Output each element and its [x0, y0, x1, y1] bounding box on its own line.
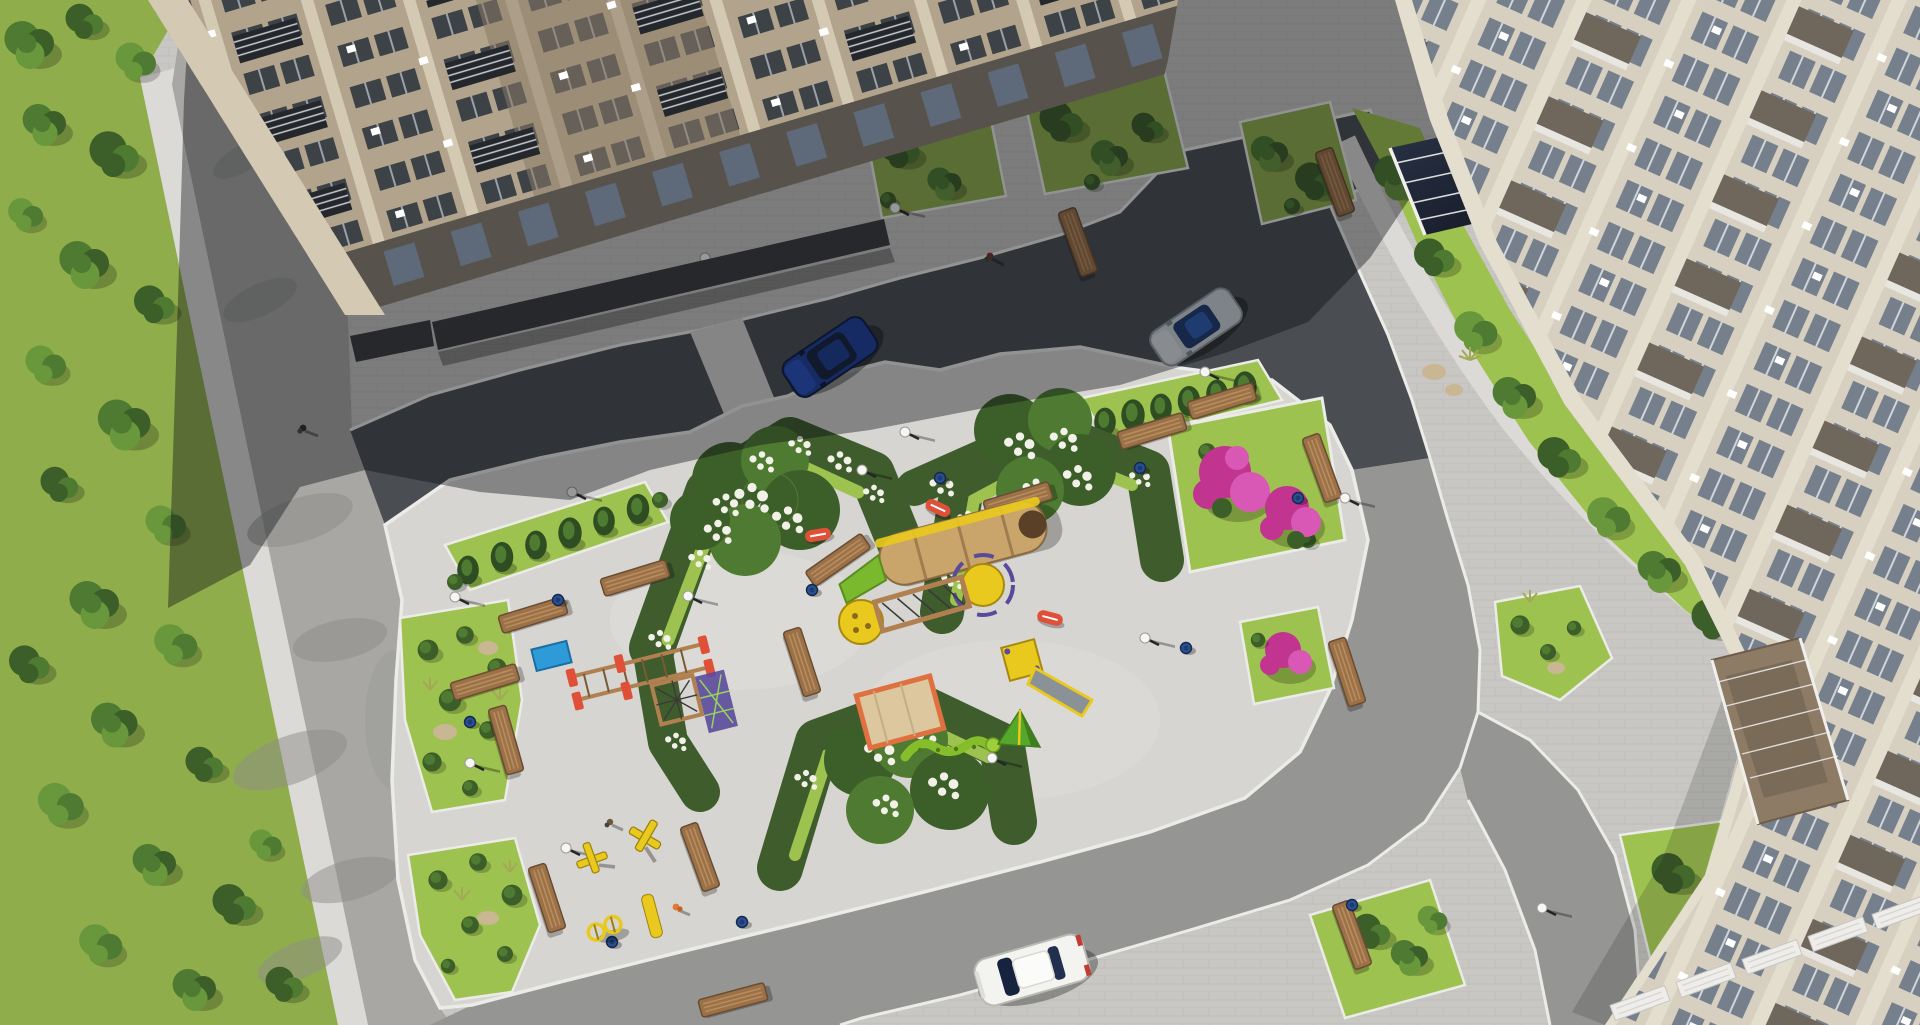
boulder: [433, 724, 457, 740]
render-stage: [0, 0, 1920, 1025]
boulder: [1445, 384, 1463, 396]
aerial-courtyard-render: [0, 0, 1920, 1025]
pink-garden-2: [1240, 607, 1334, 704]
boulder: [1547, 662, 1565, 674]
boulder: [1422, 364, 1446, 380]
boulder: [478, 641, 498, 655]
boulder: [477, 911, 499, 925]
